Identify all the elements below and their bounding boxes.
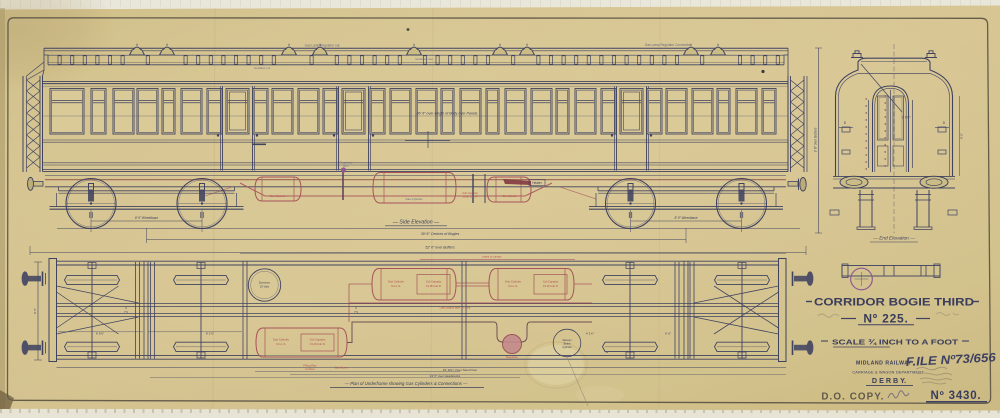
svg-text:Regulator: Regulator xyxy=(506,355,518,359)
svg-text:Gas Supply pipe 1¼″ dia: Gas Supply pipe 1¼″ dia xyxy=(440,306,471,310)
svg-text:8′ 0″ Wheelbase: 8′ 0″ Wheelbase xyxy=(135,216,158,220)
svg-text:8′ 6″: 8′ 6″ xyxy=(33,308,37,314)
svg-text:No 1: No 1 xyxy=(343,164,349,168)
svg-text:19.18 Cub Ft: 19.18 Cub Ft xyxy=(310,342,325,346)
svg-text:39′ 6″ Centres of Bogies: 39′ 6″ Centres of Bogies xyxy=(421,232,460,236)
svg-text:2′ 6½″: 2′ 6½″ xyxy=(902,116,912,120)
svg-text:Vacuum: Vacuum xyxy=(562,338,571,342)
svg-text:4′ 1¾″: 4′ 1¾″ xyxy=(586,332,594,336)
svg-text:20 Volts: 20 Volts xyxy=(260,285,270,289)
svg-text:19.18 Cub Ft: 19.18 Cub Ft xyxy=(463,194,478,198)
svg-text:S.G.L.S.: S.G.L.S. xyxy=(508,284,518,288)
svg-text:9′ 6″ over Gutters: 9′ 6″ over Gutters xyxy=(814,127,818,152)
svg-text:Cub Capacity: Cub Capacity xyxy=(462,191,478,195)
svg-text:Gas Cylinder: Gas Cylinder xyxy=(270,194,286,198)
svg-text:D E R B Y.: D E R B Y. xyxy=(872,376,906,385)
svg-text:Nº 225.: Nº 225. xyxy=(863,312,908,326)
svg-text:36′ 6″ over length of Body ove: 36′ 6″ over length of Body over Panels xyxy=(417,112,478,116)
svg-text:15′ 10¾″ Over Steel Floor: 15′ 10¾″ Over Steel Floor xyxy=(443,368,477,372)
svg-text:Gas Cylinder: Gas Cylinder xyxy=(503,194,518,198)
svg-text:6′ 6″: 6′ 6″ xyxy=(665,332,671,336)
svg-text:CARRIAGE & WAGON DEPARTMENT: CARRIAGE & WAGON DEPARTMENT xyxy=(852,370,924,374)
svg-text:SCALE ¾ INCH TO A FOOT: SCALE ¾ INCH TO A FOOT xyxy=(832,338,959,347)
svg-text:pipes to Lamps: pipes to Lamps xyxy=(483,255,503,259)
svg-text:S.G.L.S.: S.G.L.S. xyxy=(391,284,401,288)
svg-text:Gas Cylinder: Gas Cylinder xyxy=(405,197,422,201)
svg-text:Nº 3430.: Nº 3430. xyxy=(931,390,982,402)
svg-text:Heater: Heater xyxy=(532,181,543,185)
svg-text:19.18 Cub Ft: 19.18 Cub Ft xyxy=(543,284,558,288)
svg-text:S.G.L.S.: S.G.L.S. xyxy=(276,342,286,346)
svg-text:— End Elevation —: — End Elevation — xyxy=(872,236,915,242)
svg-text:Cub Capacity: Cub Capacity xyxy=(543,279,559,283)
svg-text:6′ 6½″: 6′ 6½″ xyxy=(96,332,104,336)
svg-text:Cylinder: Cylinder xyxy=(562,345,572,349)
svg-text:to Stove: to Stove xyxy=(305,367,315,371)
svg-text:CORRIDOR BOGIE THIRD: CORRIDOR BOGIE THIRD xyxy=(814,297,974,309)
svg-text:7½: 7½ xyxy=(124,310,129,314)
svg-text:8′ 0″: 8′ 0″ xyxy=(960,133,964,139)
svg-text:Gas Cylinder: Gas Cylinder xyxy=(388,279,404,283)
svg-text:19.18 Cub Ft: 19.18 Cub Ft xyxy=(426,284,441,288)
svg-text:Cub Capacity: Cub Capacity xyxy=(426,279,442,283)
svg-text:8′ 0″ Wheelbase: 8′ 0″ Wheelbase xyxy=(675,216,698,220)
svg-text:Brake: Brake xyxy=(564,342,571,346)
svg-text:Gas Lamp Regulator out: Gas Lamp Regulator out xyxy=(305,44,340,48)
svg-text:Gas Cylinder: Gas Cylinder xyxy=(273,338,289,342)
svg-text:Ventilator out: Ventilator out xyxy=(415,57,433,61)
svg-text:Gas Stove: Gas Stove xyxy=(335,366,348,370)
svg-text:— Plan of Underframe showing G: — Plan of Underframe showing Gas Cylinde… xyxy=(344,381,468,386)
svg-text:Gas Cylinder: Gas Cylinder xyxy=(505,279,521,283)
svg-text:13′ 6″ over Headstocks: 13′ 6″ over Headstocks xyxy=(430,374,461,378)
svg-text:MIDLAND RAILWAY: MIDLAND RAILWAY xyxy=(856,361,912,367)
svg-text:— Side Elevation —: — Side Elevation — xyxy=(392,220,440,226)
svg-text:Ventilator out: Ventilator out xyxy=(254,66,271,70)
svg-text:D.O. COPY.: D.O. COPY. xyxy=(821,392,884,403)
svg-text:Filling Pipe: Filling Pipe xyxy=(303,364,317,368)
svg-text:6′ 1½″: 6′ 1½″ xyxy=(206,332,214,336)
svg-text:52′ 6″ over Buffers: 52′ 6″ over Buffers xyxy=(425,246,455,250)
svg-text:Cub Capacity: Cub Capacity xyxy=(310,338,326,342)
svg-text:7½: 7½ xyxy=(354,310,359,314)
svg-text:Dynamo: Dynamo xyxy=(259,281,271,285)
svg-text:Gas Lamp Regulator Connection: Gas Lamp Regulator Connection xyxy=(645,43,692,47)
